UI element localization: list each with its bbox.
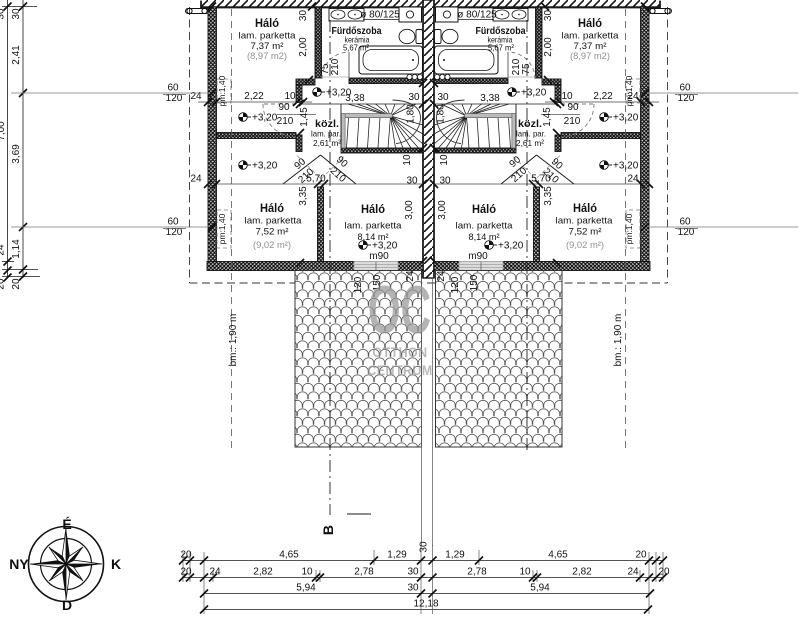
svg-text:30: 30 (11, 8, 22, 20)
svg-text:24: 24 (627, 174, 639, 185)
svg-text:bm.: 1,90 m: bm.: 1,90 m (228, 314, 239, 367)
svg-text:30: 30 (419, 541, 430, 553)
svg-text:30: 30 (543, 10, 554, 22)
svg-text:2,22: 2,22 (593, 91, 613, 102)
svg-text:90: 90 (567, 102, 579, 113)
svg-text:10: 10 (519, 567, 531, 578)
svg-text:3,38: 3,38 (480, 93, 500, 104)
svg-text:m90: m90 (468, 251, 488, 262)
svg-text:Háló: Háló (260, 201, 284, 215)
svg-text:30: 30 (407, 567, 419, 578)
svg-text:10: 10 (301, 567, 313, 578)
svg-text:2,61 m²: 2,61 m² (313, 138, 341, 148)
svg-text:lam. par.: lam. par. (516, 129, 546, 139)
svg-text:20: 20 (635, 550, 647, 561)
svg-text:3,00: 3,00 (437, 200, 448, 220)
svg-text:Háló: Háló (472, 202, 496, 216)
svg-text:30: 30 (0, 8, 7, 20)
svg-text:30: 30 (298, 10, 309, 22)
svg-text:+3,20: +3,20 (252, 113, 278, 124)
svg-text:7,52 m²: 7,52 m² (569, 227, 602, 238)
svg-text:D: D (62, 597, 72, 613)
svg-text:10: 10 (402, 154, 413, 166)
svg-text:+3,20: +3,20 (372, 241, 398, 252)
svg-text:5,67 m²: 5,67 m² (343, 43, 369, 53)
svg-text:10: 10 (284, 91, 296, 102)
svg-text:10: 10 (561, 91, 573, 102)
svg-text:120: 120 (353, 276, 364, 293)
svg-text:2,41: 2,41 (11, 45, 22, 65)
svg-text:210: 210 (511, 58, 522, 75)
svg-text:20: 20 (180, 550, 192, 561)
svg-text:2,78: 2,78 (354, 567, 374, 578)
svg-text:ø 80/125: ø 80/125 (457, 10, 497, 21)
svg-text:20: 20 (180, 567, 192, 578)
svg-text:24: 24 (190, 174, 202, 185)
svg-text:90: 90 (278, 102, 290, 113)
svg-text:CENTRUM: CENTRUM (367, 363, 432, 379)
svg-text:2,78: 2,78 (467, 567, 487, 578)
svg-text:8,14 m²: 8,14 m² (469, 232, 500, 243)
svg-text:lam. parketta: lam. parketta (345, 221, 403, 232)
svg-text:24: 24 (209, 567, 221, 578)
svg-text:10: 10 (439, 154, 450, 166)
svg-text:5,67 m²: 5,67 m² (488, 43, 514, 53)
svg-text:lam. parketta: lam. parketta (239, 31, 297, 42)
svg-text:m90: m90 (369, 251, 389, 262)
svg-text:3,00: 3,00 (404, 200, 415, 220)
svg-text:60: 60 (167, 217, 179, 228)
svg-text:lam. par.: lam. par. (311, 129, 341, 139)
svg-text:Háló: Háló (573, 201, 597, 215)
svg-text:210: 210 (330, 58, 341, 75)
svg-text:(8,97 m2): (8,97 m2) (247, 51, 287, 62)
svg-text:30: 30 (407, 583, 419, 594)
svg-text:lam. parketta: lam. parketta (562, 31, 620, 42)
svg-text:4,65: 4,65 (279, 550, 299, 561)
svg-text:30: 30 (439, 176, 451, 187)
svg-text:lam. parketta: lam. parketta (556, 216, 614, 227)
svg-text:3,35: 3,35 (543, 186, 554, 206)
svg-text:1,29: 1,29 (445, 550, 465, 561)
svg-text:K: K (111, 556, 121, 572)
svg-text:60: 60 (167, 83, 179, 94)
svg-text:210: 210 (277, 116, 294, 127)
svg-text:2,61 m²: 2,61 m² (516, 138, 544, 148)
svg-text:2,00: 2,00 (543, 37, 554, 57)
svg-text:5,94: 5,94 (530, 583, 550, 594)
svg-text:2,00: 2,00 (298, 37, 309, 57)
svg-text:20: 20 (11, 278, 22, 290)
svg-text:1,45: 1,45 (542, 107, 553, 127)
svg-text:4,65: 4,65 (548, 550, 568, 561)
svg-text:NY: NY (9, 556, 29, 572)
svg-text:5,70: 5,70 (531, 174, 551, 185)
svg-text:1,29: 1,29 (387, 550, 407, 561)
svg-text:60: 60 (679, 217, 691, 228)
svg-text:24: 24 (436, 270, 447, 282)
svg-text:1,80: 1,80 (436, 104, 447, 124)
svg-text:30: 30 (406, 176, 418, 187)
svg-text:+3,20: +3,20 (252, 161, 278, 172)
svg-text:2,82: 2,82 (572, 567, 592, 578)
svg-text:lam. parketta: lam. parketta (245, 216, 303, 227)
svg-text:+3,20: +3,20 (613, 113, 639, 124)
svg-text:bm.: 1,90 m: bm.: 1,90 m (613, 314, 624, 367)
svg-text:2,82: 2,82 (253, 567, 273, 578)
svg-text:3,38: 3,38 (345, 93, 365, 104)
svg-text:1,45: 1,45 (299, 107, 310, 127)
svg-text:20: 20 (0, 278, 7, 290)
svg-text:210: 210 (564, 116, 581, 127)
svg-text:+3,20: +3,20 (613, 161, 639, 172)
svg-text:12,18: 12,18 (413, 599, 438, 610)
svg-text:Háló: Háló (578, 16, 602, 30)
svg-text:Háló: Háló (361, 202, 385, 216)
svg-text:5,70: 5,70 (306, 174, 326, 185)
svg-text:3,69: 3,69 (11, 144, 22, 164)
svg-text:1,14: 1,14 (11, 239, 22, 259)
svg-text:60: 60 (679, 83, 691, 94)
svg-text:2,22: 2,22 (244, 91, 264, 102)
svg-text:150: 150 (469, 274, 480, 291)
svg-text:30: 30 (437, 92, 449, 103)
svg-text:75: 75 (521, 63, 532, 75)
svg-text:1,80: 1,80 (406, 104, 417, 124)
svg-text:Háló: Háló (255, 16, 279, 30)
svg-text:3,35: 3,35 (298, 186, 309, 206)
svg-text:24: 24 (627, 91, 639, 102)
svg-text:7,00: 7,00 (0, 121, 7, 141)
svg-text:pm:1,40: pm:1,40 (217, 75, 227, 106)
svg-text:(9,02 m²): (9,02 m²) (253, 240, 291, 251)
svg-text:OC: OC (368, 272, 431, 348)
svg-text:24: 24 (0, 244, 7, 256)
svg-text:+3,20: +3,20 (498, 241, 524, 252)
svg-text:OTTHON: OTTHON (372, 345, 427, 361)
svg-text:7,52 m²: 7,52 m² (256, 227, 289, 238)
svg-text:30: 30 (408, 92, 420, 103)
svg-text:B: B (320, 525, 336, 535)
svg-text:(8,97 m2): (8,97 m2) (570, 51, 610, 62)
svg-text:É: É (62, 516, 71, 532)
svg-text:ø 80/125: ø 80/125 (360, 10, 400, 21)
svg-text:20: 20 (658, 567, 670, 578)
svg-text:pm:1,40: pm:1,40 (217, 213, 227, 244)
svg-text:(9,02 m²): (9,02 m²) (566, 240, 604, 251)
svg-text:24: 24 (627, 567, 639, 578)
svg-text:pm:1,40: pm:1,40 (624, 213, 634, 244)
svg-text:120: 120 (450, 276, 461, 293)
svg-text:+3,20: +3,20 (521, 88, 547, 99)
svg-text:5,94: 5,94 (296, 583, 316, 594)
svg-text:lam. parketta: lam. parketta (456, 221, 514, 232)
